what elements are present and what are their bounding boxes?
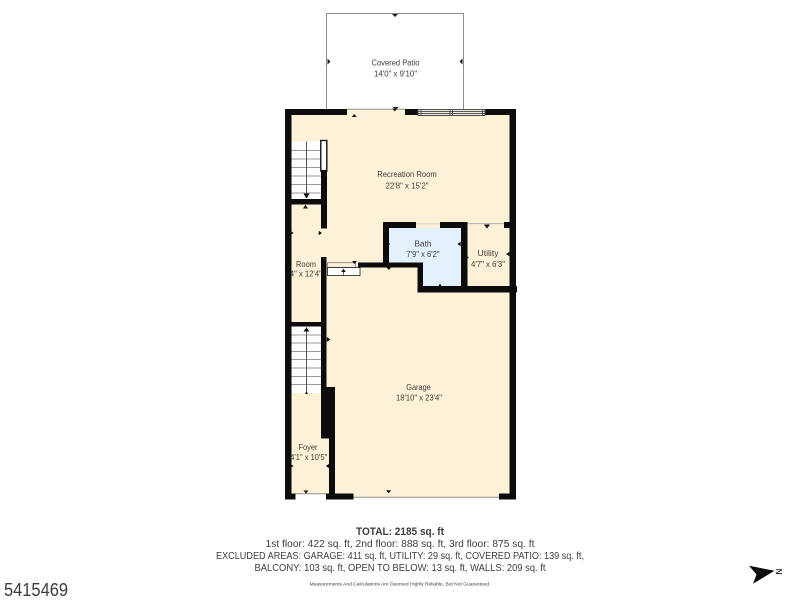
- svg-text:Bath: Bath: [415, 239, 432, 249]
- svg-text:Garage: Garage: [406, 382, 431, 392]
- svg-text:4'7" x 6'3": 4'7" x 6'3": [471, 259, 505, 269]
- svg-text:18'10" x 23'4": 18'10" x 23'4": [396, 393, 442, 403]
- svg-text:EXCLUDED AREAS: GARAGE: 411 sq: EXCLUDED AREAS: GARAGE: 411 sq. ft, UTIL…: [216, 551, 584, 562]
- svg-text:Recreation Room: Recreation Room: [377, 169, 437, 179]
- svg-text:14'0" x 9'10": 14'0" x 9'10": [374, 69, 417, 79]
- svg-text:Foyer: Foyer: [299, 442, 318, 452]
- svg-text:1st floor: 422 sq. ft, 2nd flo: 1st floor: 422 sq. ft, 2nd floor: 888 sq…: [266, 539, 535, 550]
- svg-text:Measurements And Calculations: Measurements And Calculations Are Deemed…: [310, 582, 491, 588]
- svg-text:7'9" x 6'2": 7'9" x 6'2": [407, 249, 440, 259]
- svg-text:TOTAL: 2185 sq. ft: TOTAL: 2185 sq. ft: [356, 526, 444, 538]
- svg-text:Utility: Utility: [478, 248, 500, 258]
- svg-text:Room: Room: [296, 259, 316, 269]
- svg-text:Covered Patio: Covered Patio: [372, 58, 420, 68]
- svg-text:22'8" x 15'2": 22'8" x 15'2": [386, 181, 429, 191]
- svg-text:5415469: 5415469: [4, 579, 68, 600]
- svg-text:4'1" x 10'5": 4'1" x 10'5": [290, 452, 327, 462]
- svg-text:N: N: [774, 569, 784, 575]
- svg-text:BALCONY: 103 sq. ft, OPEN TO B: BALCONY: 103 sq. ft, OPEN TO BELOW: 13 s…: [255, 563, 546, 574]
